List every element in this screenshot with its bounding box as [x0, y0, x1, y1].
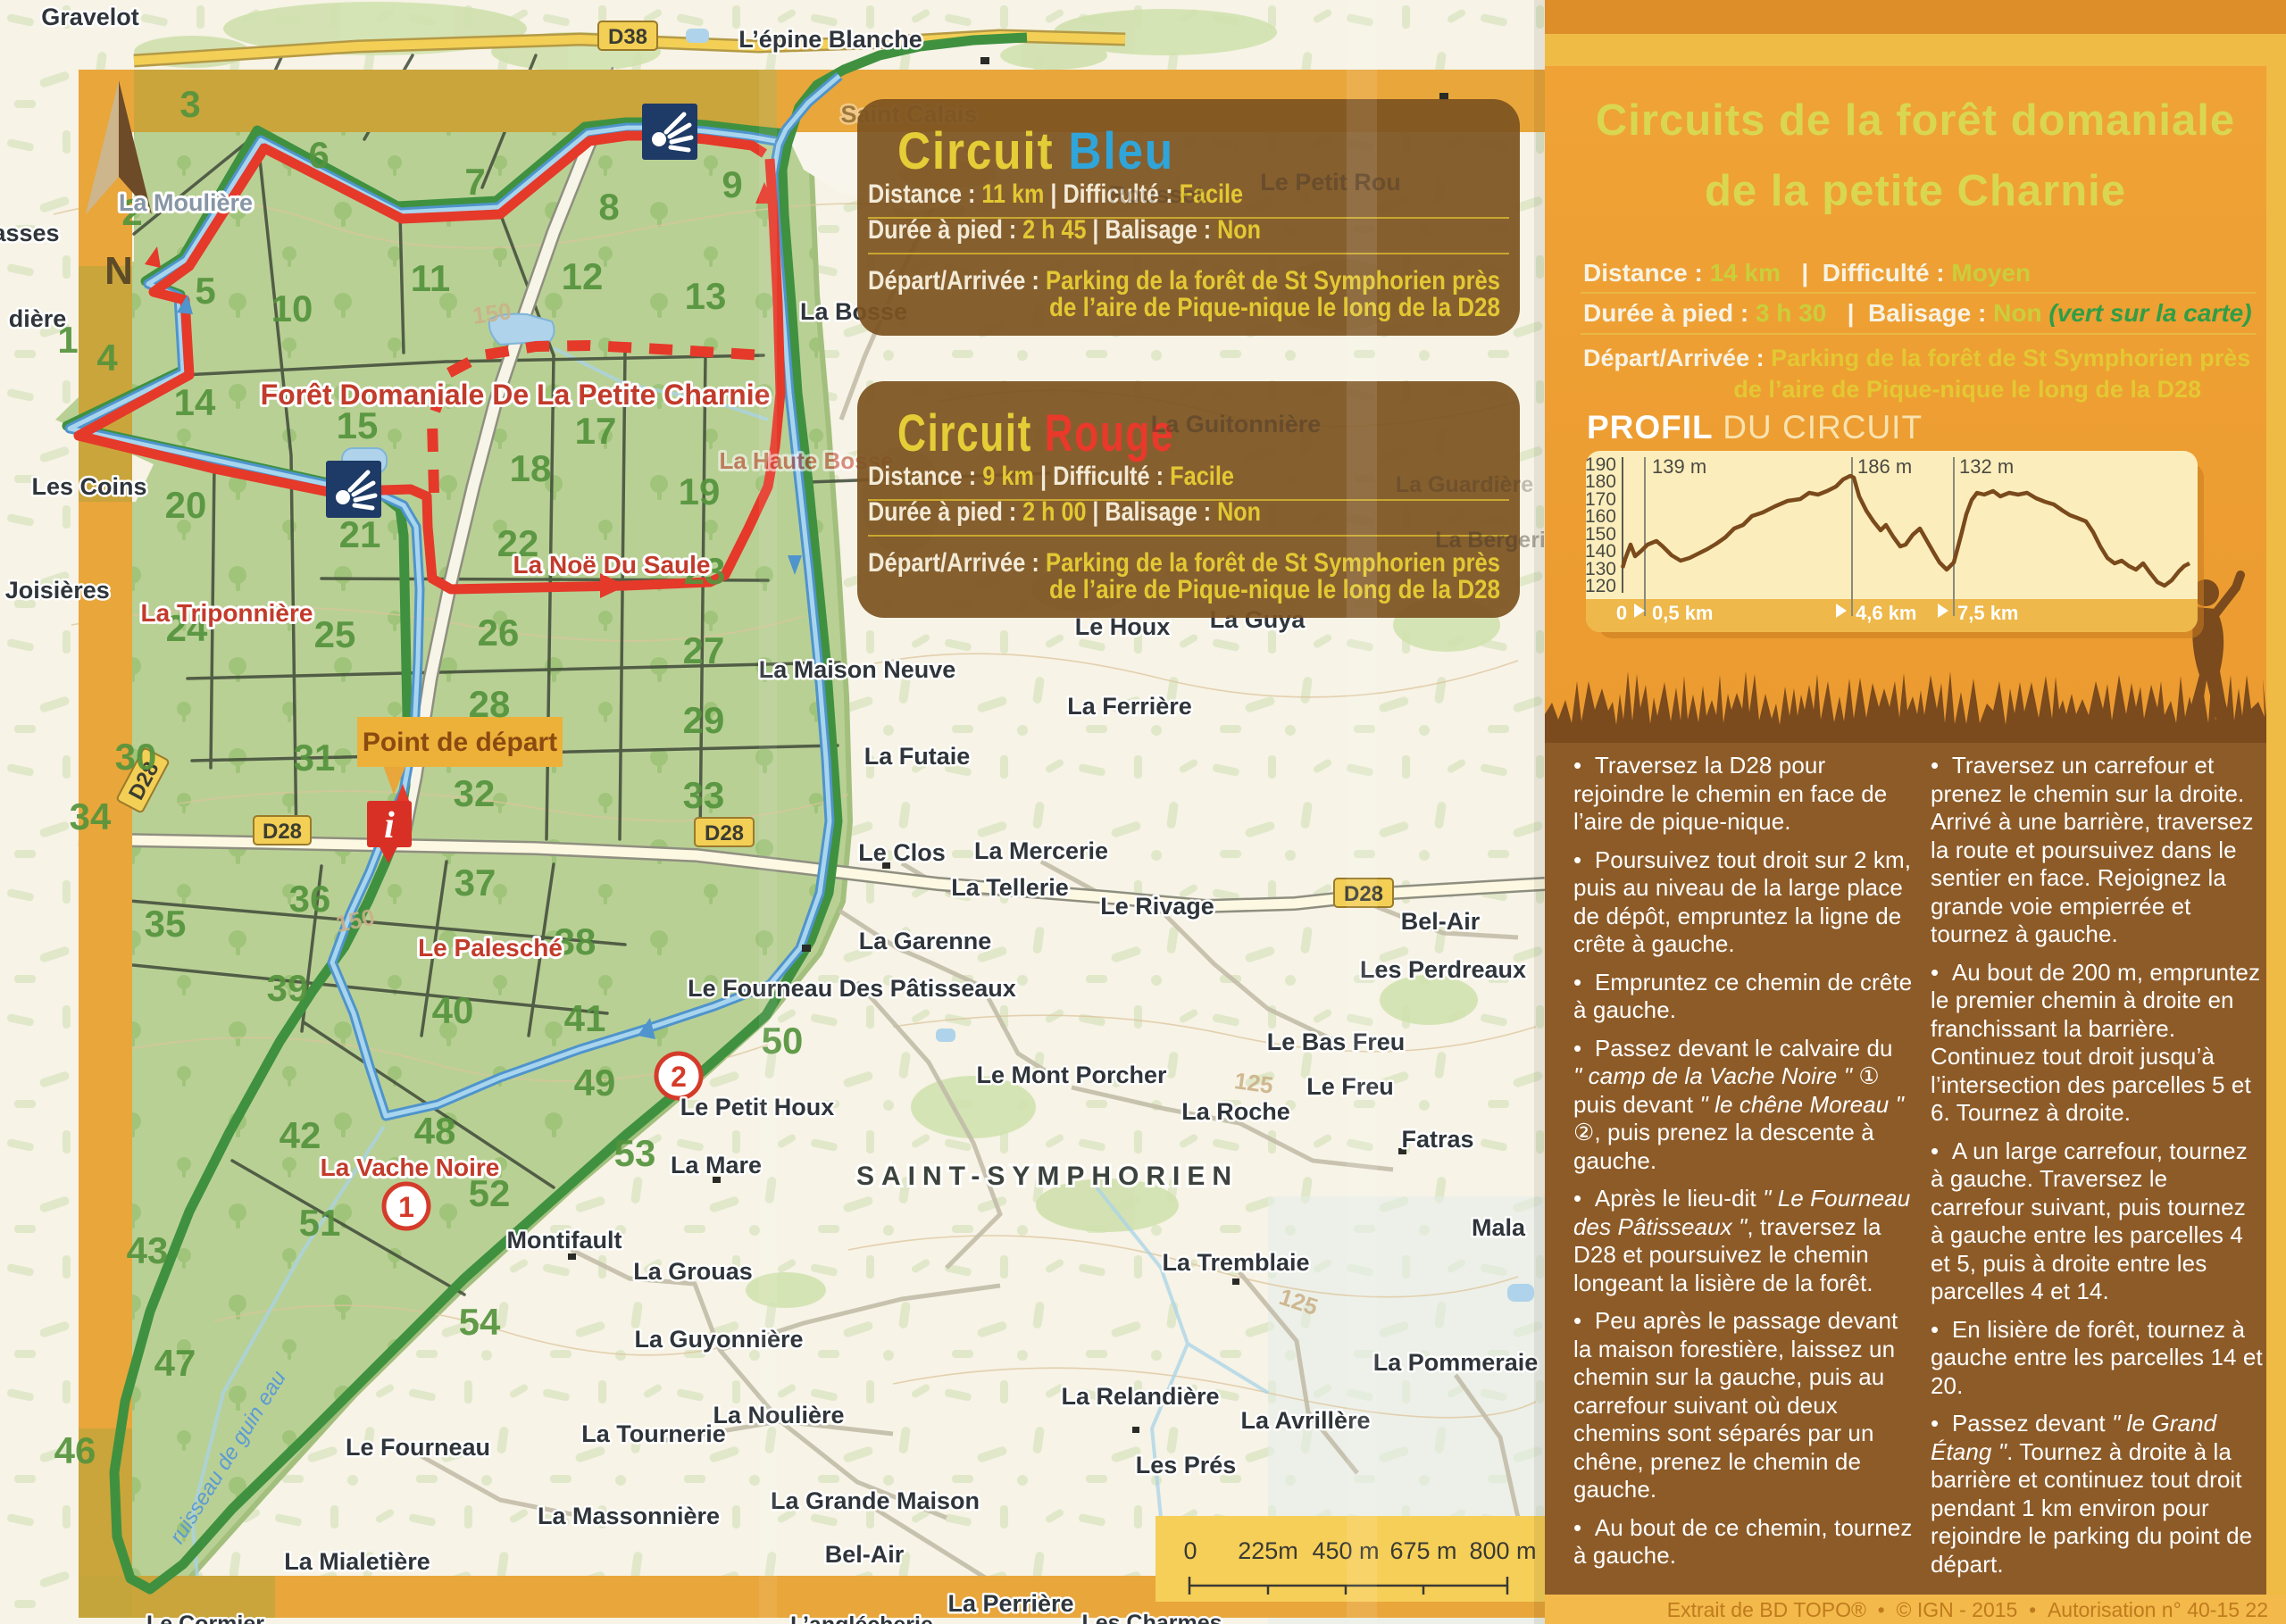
svg-text:La Vache Noire: La Vache Noire	[321, 1153, 500, 1181]
svg-text:La Massonnière: La Massonnière	[538, 1503, 720, 1529]
svg-text:s Joisières: s Joisières	[0, 577, 110, 604]
svg-text:5: 5	[195, 270, 215, 312]
svg-text:27: 27	[683, 629, 725, 671]
svg-text:12: 12	[562, 255, 604, 297]
svg-text:Le Petit Houx: Le Petit Houx	[680, 1094, 835, 1120]
svg-text:48: 48	[414, 1110, 456, 1152]
svg-text:3: 3	[179, 83, 200, 125]
svg-text:7: 7	[464, 161, 485, 203]
svg-text:Montifault: Montifault	[507, 1227, 622, 1253]
svg-text:Distance : 9 km | Difficulté: Distance : 9 km | Difficulté : Facile	[868, 462, 1234, 491]
svg-text:La Triponnière: La Triponnière	[141, 599, 313, 627]
svg-text:L’épine Blanche: L’épine Blanche	[738, 26, 922, 53]
svg-text:2: 2	[671, 1061, 687, 1093]
svg-text:D28: D28	[263, 820, 302, 844]
svg-text:La Garenne: La Garenne	[859, 928, 992, 954]
svg-text:La Guardière: La Guardière	[1396, 472, 1533, 497]
svg-text:Durée à pied : 2 h 00 | Bali: Durée à pied : 2 h 00 | Balisage : Non	[868, 497, 1261, 527]
svg-text:33: 33	[683, 774, 725, 816]
svg-text:28: 28	[469, 683, 511, 725]
svg-text:132 m: 132 m	[1959, 455, 2014, 478]
svg-text:4,6 km: 4,6 km	[1856, 602, 1917, 624]
svg-text:26: 26	[478, 612, 520, 654]
svg-text:Le Petit Rou: Le Petit Rou	[1260, 169, 1401, 196]
svg-text:42: 42	[279, 1114, 321, 1156]
svg-text:Les Perdreaux: Les Perdreaux	[1360, 956, 1526, 983]
svg-text:N: N	[104, 249, 133, 293]
svg-text:i: i	[384, 805, 395, 846]
svg-text:Circuit Bleu: Circuit Bleu	[897, 122, 1174, 180]
svg-text:La Pommeraie: La Pommeraie	[1373, 1349, 1539, 1376]
svg-text:37: 37	[455, 862, 496, 904]
svg-text:La Bergerie: La Bergerie	[1435, 528, 1558, 553]
svg-text:34: 34	[70, 795, 112, 837]
svg-text:La Perrière: La Perrière	[947, 1590, 1073, 1617]
svg-text:6: 6	[308, 134, 329, 176]
svg-text:La Relandière: La Relandière	[1061, 1383, 1219, 1410]
svg-text:La Noë Du Saule: La Noë Du Saule	[513, 551, 711, 579]
svg-text:La Mercerie: La Mercerie	[974, 837, 1108, 864]
svg-text:13: 13	[685, 275, 727, 317]
svg-text:Circuit Rouge: Circuit Rouge	[897, 404, 1174, 462]
svg-text:Durée à pied : 2 h 45 | Bali: Durée à pied : 2 h 45 | Balisage : Non	[868, 215, 1261, 245]
svg-text:19: 19	[679, 471, 721, 512]
svg-text:Le Bas Freu: Le Bas Freu	[1267, 1029, 1406, 1055]
svg-text:120: 120	[1585, 576, 1616, 596]
svg-text:Départ/Arrivée : Parking de la: Départ/Arrivée : Parking de la forêt de …	[868, 548, 1500, 578]
svg-text:La Tellerie: La Tellerie	[951, 874, 1069, 901]
svg-text:47: 47	[154, 1342, 196, 1384]
svg-text:0: 0	[1616, 602, 1627, 624]
svg-text:31: 31	[294, 737, 336, 779]
svg-text:29: 29	[683, 699, 725, 741]
svg-text:39: 39	[267, 967, 309, 1009]
svg-text:225m: 225m	[1238, 1537, 1298, 1564]
svg-text:4: 4	[96, 337, 118, 379]
svg-text:32: 32	[454, 772, 496, 814]
svg-text:43: 43	[127, 1229, 169, 1271]
svg-text:Fatras: Fatras	[1401, 1126, 1473, 1153]
svg-text:SAINT-SYMPHORIEN: SAINT-SYMPHORIEN	[856, 1162, 1239, 1191]
svg-text:139 m: 139 m	[1652, 455, 1706, 478]
svg-text:Le Rivage: Le Rivage	[1100, 893, 1214, 920]
svg-text:17: 17	[575, 410, 617, 452]
svg-text:de l’aire de Pique-nique le lo: de l’aire de Pique-nique le long de la D…	[1049, 575, 1500, 604]
svg-text:dière: dière	[9, 305, 67, 332]
svg-text:La Grouas: La Grouas	[633, 1258, 753, 1285]
svg-text:1: 1	[398, 1191, 414, 1223]
svg-text:Le Clos: Le Clos	[858, 839, 946, 866]
svg-text:36: 36	[289, 878, 331, 920]
svg-text:La Noulière: La Noulière	[713, 1402, 844, 1428]
svg-text:0,5 km: 0,5 km	[1652, 602, 1714, 624]
svg-text:de l’aire de Pique-nique le lo: de l’aire de Pique-nique le long de la D…	[1049, 293, 1500, 322]
svg-text:0: 0	[1183, 1537, 1197, 1564]
svg-text:La Mialetière: La Mialetière	[284, 1548, 430, 1575]
svg-text:La Tremblaie: La Tremblaie	[1162, 1249, 1309, 1276]
svg-text:35: 35	[145, 903, 187, 945]
svg-text:51: 51	[299, 1202, 341, 1244]
svg-text:10: 10	[271, 287, 313, 329]
svg-text:Forêt Domaniale De La Petite C: Forêt Domaniale De La Petite Charnie	[261, 379, 771, 411]
svg-text:D28: D28	[705, 821, 744, 845]
svg-text:30: 30	[115, 736, 157, 778]
svg-text:Rousset: Rousset	[1109, 181, 1205, 208]
svg-text:9: 9	[722, 163, 742, 205]
svg-text:21: 21	[339, 513, 381, 555]
svg-text:La Mare: La Mare	[671, 1152, 762, 1178]
svg-text:18: 18	[510, 447, 552, 489]
svg-text:La Guyonnière: La Guyonnière	[634, 1326, 803, 1353]
svg-text:53: 53	[614, 1132, 656, 1174]
svg-text:54: 54	[459, 1301, 501, 1343]
svg-text:186 m: 186 m	[1857, 455, 1912, 478]
svg-text:20: 20	[165, 484, 207, 526]
svg-text:Gravelot: Gravelot	[41, 4, 139, 30]
svg-text:Le Cormier: Le Cormier	[146, 1612, 264, 1624]
svg-text:D38: D38	[608, 25, 647, 49]
svg-text:800 m: 800 m	[1469, 1537, 1536, 1564]
svg-text:Le Fourneau: Le Fourneau	[346, 1434, 490, 1461]
svg-text:14: 14	[174, 381, 216, 423]
svg-text:Point de départ: Point de départ	[363, 728, 557, 757]
svg-text:L’anglécherie: L’anglécherie	[790, 1612, 933, 1624]
svg-text:125: 125	[1233, 1067, 1275, 1099]
svg-text:Le Fourneau Des Pâtisseaux: Le Fourneau Des Pâtisseaux	[688, 975, 1016, 1002]
svg-text:La Moulière: La Moulière	[119, 189, 253, 216]
svg-text:La Roche: La Roche	[1181, 1098, 1290, 1125]
svg-text:15: 15	[337, 404, 379, 446]
svg-text:La Ferrière: La Ferrière	[1067, 693, 1192, 720]
svg-text:La Tournerie: La Tournerie	[581, 1420, 726, 1447]
svg-text:Le Mont Porcher: Le Mont Porcher	[976, 1062, 1167, 1088]
svg-text:Mala: Mala	[1472, 1214, 1526, 1241]
svg-text:La Maison Neuve: La Maison Neuve	[759, 656, 956, 683]
svg-text:Le Palesché: Le Palesché	[418, 934, 563, 962]
svg-text:25: 25	[314, 613, 356, 655]
svg-text:46: 46	[54, 1429, 96, 1471]
svg-text:Les Charmes: Les Charmes	[1081, 1611, 1222, 1624]
svg-text:Bel-Air: Bel-Air	[825, 1541, 905, 1568]
svg-text:8: 8	[598, 186, 619, 228]
svg-text:7,5 km: 7,5 km	[1957, 602, 2019, 624]
svg-text:Les Coins: Les Coins	[31, 473, 146, 500]
svg-text:40: 40	[432, 989, 474, 1031]
svg-text:11: 11	[411, 257, 450, 299]
svg-text:49: 49	[574, 1062, 616, 1103]
svg-text:La Guitonnière: La Guitonnière	[1151, 411, 1322, 437]
svg-text:675 m: 675 m	[1389, 1537, 1456, 1564]
svg-text:41: 41	[564, 997, 606, 1039]
svg-text:Bel-Air: Bel-Air	[1401, 908, 1481, 935]
svg-text:Départ/Arrivée : Parking de la: Départ/Arrivée : Parking de la forêt de …	[868, 266, 1500, 296]
svg-text:150: 150	[471, 297, 513, 329]
svg-text:La Futaie: La Futaie	[864, 743, 971, 770]
svg-text:asses: asses	[0, 220, 60, 246]
svg-text:Les Prés: Les Prés	[1136, 1452, 1237, 1478]
svg-text:La Grande Maison: La Grande Maison	[771, 1487, 980, 1514]
